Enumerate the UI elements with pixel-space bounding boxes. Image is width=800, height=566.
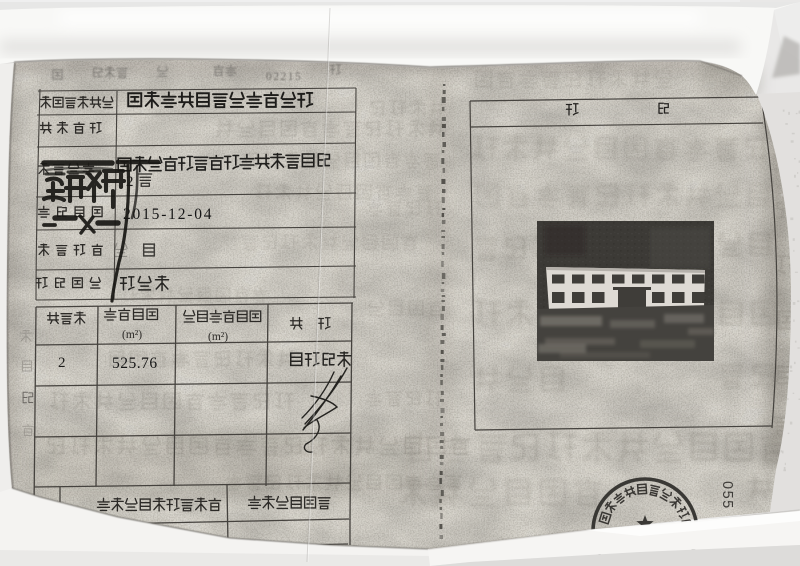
svg-text:02215: 02215 (266, 71, 302, 83)
svg-text:525.76: 525.76 (112, 355, 158, 372)
svg-text:055: 055 (719, 481, 735, 510)
svg-text:2: 2 (58, 355, 66, 371)
svg-text:(m²): (m²) (208, 331, 228, 343)
svg-text:2015-12-04: 2015-12-04 (123, 206, 213, 223)
svg-text:(m²): (m²) (122, 329, 142, 341)
